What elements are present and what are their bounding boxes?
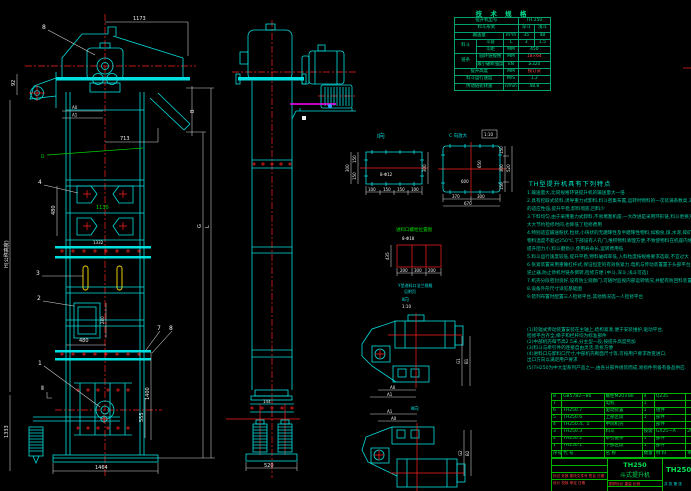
features-title: TH型提升机具有下列特点 — [529, 179, 611, 188]
note-line: 出口方向以满足用户要求 — [527, 358, 691, 364]
detail-C-dim: 150 — [499, 182, 504, 190]
cell: 输送量 — [455, 32, 504, 39]
detail-I-title: Ⅰ向 — [377, 132, 385, 140]
cell: 4 — [552, 422, 562, 429]
title-model: TH250 — [608, 461, 662, 469]
cell: 18×64 — [518, 54, 550, 61]
dim-height: H(公称高度) — [3, 240, 10, 268]
dim-713: 713 — [120, 136, 130, 142]
feature-line: 9.错列布置时配置三人检修平台,其他情况选一人检修平台 — [527, 294, 691, 302]
cell: MM — [504, 69, 518, 76]
feature-line: 提升阻力小,料斗磨损小,使用寿命长,运转费用低 — [527, 246, 691, 254]
cell: 3 — [518, 39, 534, 46]
cell: 1 — [642, 443, 654, 450]
drive-arrangement-view-top: Ⅱ向 1:10 A0 A1 G1 B1 — [362, 296, 470, 397]
spec-row: 料斗形式 深斗 浅斗 — [455, 25, 551, 32]
cell: 7 — [552, 401, 562, 408]
cell: 1.5 — [534, 39, 550, 46]
head-flange-band — [56, 77, 190, 81]
cell: 驱动装置 — [604, 408, 642, 415]
viewA-g: G1 — [456, 358, 461, 364]
part-label-2: 2 — [37, 295, 41, 302]
cell: Q235 — [654, 394, 685, 401]
cell — [562, 401, 605, 408]
cell: 1 — [642, 415, 654, 422]
cell: 料斗 — [604, 429, 642, 436]
viewB-a1: A1 — [387, 409, 393, 414]
cell: 按需 — [642, 429, 654, 436]
viewB-b: B2 — [465, 450, 470, 456]
dim-480-doors: 480 — [51, 205, 57, 215]
feature-line: 逆止器,防止停机时链条倒转,检修方便 (中斗,深斗,浅斗可选) — [527, 270, 691, 278]
detail-I-dim: 300 — [422, 164, 427, 172]
part-label-3: 3 — [36, 270, 40, 277]
dim-144: 144 — [263, 399, 271, 404]
cell — [686, 436, 691, 443]
cell: 斗距 — [477, 47, 504, 54]
viewA-title: Ⅱ向 — [402, 296, 409, 303]
parts-row: 3 TH250.3 料斗 按需 GX25—A 204 — [552, 429, 691, 436]
cell: GB5782—86 — [562, 394, 605, 401]
cell: 提升机型号 — [455, 18, 519, 25]
cell: 链条 — [455, 54, 477, 69]
detail-I-dim: 100 — [411, 187, 419, 192]
dim-a0: A0 — [72, 105, 78, 110]
dim-520: 520 — [264, 463, 274, 469]
cell: 部件 — [654, 443, 685, 450]
dim-1464: 1464 — [95, 465, 108, 471]
inlet-flange-detail: 进料口螺栓位置图 8-Φ18 200 300 200 435 Y型进料口法兰规格… — [385, 226, 441, 294]
cell: m³/h — [504, 32, 518, 39]
cad-drawing-canvas: D 1173 713 92 A0 A1 B G L 480 1130 1332 … — [0, 0, 691, 491]
feature-line: 7.机壳分段密封良好,设有防尘观察门,可随时监视内部运转情况,并配有防回料装置 — [527, 278, 691, 286]
cell: 圆环链规格 — [477, 54, 504, 61]
inlet-bolt: 8-Φ18 — [402, 236, 415, 241]
cell: 数量 — [642, 450, 654, 457]
cell: 名 称 — [604, 450, 642, 457]
parts-row: 4 TH250.4、5 中间机壳 部件 — [552, 422, 691, 429]
feature-line: 物料温度不超过250℃,下部设有人孔门,堆积物料清理方便,不致使物料在机座内堆积… — [527, 238, 691, 246]
cell — [686, 415, 691, 422]
cell: 料斗运行速度 — [455, 76, 504, 83]
detail-I-dim: 150 — [352, 155, 357, 163]
cell: MM — [504, 47, 518, 54]
inlet-dim: 200 — [428, 268, 436, 273]
cell: 中间机壳 — [604, 422, 642, 429]
cell: TH250.7 — [562, 408, 605, 415]
part-label-8: 8 — [42, 24, 46, 31]
detail-C-h650: 650 — [477, 160, 482, 168]
detail-I-dim: 150 — [397, 187, 405, 192]
spec-row: 料斗运行速度 M/S 1.2 — [455, 76, 551, 83]
dim-1173: 1173 — [133, 16, 146, 22]
detail-C-dim: 150 — [499, 146, 504, 154]
cell: 450 — [518, 47, 550, 54]
spec-row: 提升高度 MM 按订货 — [455, 69, 551, 76]
cell: 提升高度 — [455, 69, 504, 76]
parts-row: 7 电机 1 — [552, 401, 691, 408]
cell: 部件 — [654, 422, 685, 429]
detail-I-dim: 150 — [352, 172, 357, 180]
cell — [686, 401, 691, 408]
cell: 螺栓M20×80 — [604, 394, 642, 401]
bucket-left — [83, 266, 88, 290]
cell: TH250.3 — [562, 429, 605, 436]
front-view: D 1173 713 92 A0 A1 B G L 480 1130 1332 … — [3, 14, 215, 478]
dim-a1: A1 — [72, 113, 78, 118]
detail-I-dim: 300 — [345, 164, 350, 172]
inlet-dim-435: 435 — [385, 252, 390, 260]
dim-280: 280 — [100, 316, 105, 324]
detail-I-dim: 100 — [368, 187, 376, 192]
stamp-labels: 图样标记 重量 比例 — [609, 482, 640, 487]
title-product-name: 斗式提升机 — [608, 470, 662, 479]
dim-480-inlet: 480 — [79, 338, 89, 344]
weld-label: D — [41, 154, 45, 160]
detail-C-dim: 300 — [499, 164, 504, 172]
cell: 8 — [552, 394, 562, 401]
feature-line: 大大节约检修时间,也降低了检修费用 — [527, 222, 691, 230]
spec-row: 输送量 m³/h 35 48 — [455, 32, 551, 39]
section-dot — [328, 104, 332, 108]
cell: 传动链轮转速 — [455, 83, 504, 90]
drawing-number: TH250 — [666, 466, 691, 474]
features-numbered-notes: (1)轮辐式传动装置安装在主轴上,结构紧凑,便于安装维护,驱动平台, 检修平台齐… — [527, 328, 691, 363]
title-block: 标记 处数 更改文件号 签名 日期 设计 校核 审定 日期 TH250 斗式提升… — [551, 458, 691, 491]
cell: 电机 — [604, 401, 642, 408]
detail-C-dim: 520 — [506, 164, 511, 172]
dim-l: L — [205, 225, 211, 228]
part-label-8b: 8 — [169, 325, 173, 332]
cell: 204 — [686, 429, 691, 436]
viewA-scale: 1:10 — [402, 304, 411, 309]
detail-C-dim: 300 — [477, 194, 485, 199]
feature-line: 1.输送量大,比同规格环链提升机的输送量大一倍 — [527, 190, 691, 198]
feature-line: 3.下料均匀,由于采用重力式卸料,不易堵塞机座,一大改进是采用环形链,料斗更换方… — [527, 214, 691, 222]
cell: 48 — [534, 32, 550, 39]
cell: 材 料 — [654, 450, 685, 457]
cell: 1 — [642, 401, 654, 408]
viewB-g: G2 — [458, 450, 463, 456]
detail-I-bolt: 8-Φ12 — [380, 172, 393, 177]
detail-C-dim: 370 — [452, 194, 460, 199]
cell: TH250.1 — [562, 443, 605, 450]
parts-list: 8 GB5782—86 螺栓M20×80 4 Q235 7 电机 1 6 TH2… — [551, 393, 691, 458]
spec-row: 链条 圆环链规格 MM 18×64 — [455, 54, 551, 61]
cell: 上部区段 — [604, 415, 642, 422]
cell — [686, 408, 691, 415]
detail-view-C: C 向放大 1:10 600 650 150 300 150 520 370 3… — [438, 130, 512, 206]
spec-table: 提升机型号 TH 250 料斗形式 深斗 浅斗 输送量 m³/h 35 48 料… — [454, 17, 551, 91]
detail-I-dim: 150 — [383, 187, 391, 192]
bucket-right — [117, 266, 122, 290]
feature-line: 5.料斗运行速度较低,提升平稳,物料破碎率低,入料粒度按规格要求选取,不宜过大 — [527, 254, 691, 262]
cell: 4 — [642, 394, 654, 401]
parts-header-row: 序号 代 号 名 称 数量 材 料 单重 — [552, 450, 691, 457]
inlet-title: 进料口螺栓位置图 — [396, 226, 432, 233]
viewB-title: Ⅲ向 — [411, 405, 419, 412]
dim-1400: 1400 — [145, 387, 151, 400]
cell: 浅斗 — [534, 25, 550, 32]
cell: 单重 — [686, 450, 691, 457]
cell: 1.2 — [518, 76, 550, 83]
viewA-a1: A1 — [387, 392, 393, 397]
detail-C-scale: 1:10 — [484, 132, 493, 137]
spec-row: 提升机型号 TH 250 — [455, 18, 551, 25]
feature-line: 8.设备外形尺寸详见基础图 — [527, 286, 691, 294]
detail-view-I: Ⅰ向 8-Φ12 150 150 300 300 100 150 150 100 — [345, 132, 428, 195]
spec-row: 传动链轮转速 r/min 48.8 — [455, 83, 551, 90]
dim-92: 92 — [11, 80, 17, 86]
cell — [642, 422, 654, 429]
inlet-dim: 200 — [400, 268, 408, 273]
cell: 1 — [642, 436, 654, 443]
revision-row: 标记 处数 更改文件号 签名 日期 — [553, 474, 604, 479]
dim-1130: 1130 — [96, 205, 109, 211]
features-footnote: (5)TH250为中大型系列产品之一,由各分部件组装而成,易损件另备有备品供应. — [527, 365, 691, 371]
inlet-caption-2: 见附页 — [404, 288, 416, 294]
cell: 1 — [552, 443, 562, 450]
cell: 部件 — [654, 436, 685, 443]
cell: 料斗形式 — [455, 25, 519, 32]
cell — [686, 422, 691, 429]
cell: 48.8 — [518, 83, 550, 90]
cell: 1 — [642, 408, 654, 415]
cell: 部件 — [654, 415, 685, 422]
feature-line: 2.具有挖取式装料,诱导重力式卸料,料斗密集布置,运转时物料的一次装满系数高,对… — [527, 198, 691, 206]
dim-555: 555 — [139, 412, 145, 422]
detail-C-title: C 向放大 — [449, 132, 468, 139]
cell: ≥320 — [518, 61, 550, 68]
cell: 35 — [518, 32, 534, 39]
cell: TH250.4、5 — [562, 422, 605, 429]
cell: 组件 — [654, 408, 685, 415]
inlet-dim: 300 — [414, 268, 422, 273]
sheet-info: 共 张 第 张 — [664, 482, 682, 487]
features-notes: 1.输送量大,比同规格环链提升机的输送量大一倍 2.具有挖取式装料,诱导重力式卸… — [527, 190, 691, 302]
cell: MM — [504, 54, 518, 61]
cell: TH 250 — [518, 18, 550, 25]
dim-1333: 1333 — [4, 425, 10, 438]
drive-arrangement-view-bottom: Ⅲ向 A1 A0 G2 B2 — [362, 405, 471, 491]
side-view: 144 520 — [226, 20, 358, 478]
section-mark-2: Ⅱ — [41, 385, 44, 392]
cell: 序号 — [552, 450, 562, 457]
viewA-b: B1 — [464, 358, 469, 364]
detail-C-dim: 670 — [464, 201, 472, 206]
feature-line: 4.特别适宜输送粉状,粒状,小块状的无磨琢性及半磨琢性物料,如粮食,煤,水泥,碎… — [527, 230, 691, 238]
cell: 深斗 — [518, 25, 534, 32]
dim-g: G — [197, 224, 203, 228]
parts-row: 8 GB5782—86 螺栓M20×80 4 Q235 — [552, 394, 691, 401]
part-label-1: 1 — [38, 360, 42, 367]
cell: L — [504, 39, 518, 46]
viewA-a0: A0 — [390, 385, 396, 390]
cell: TH250.6 — [562, 415, 605, 422]
cell: r/min — [504, 83, 518, 90]
cell: M/S — [504, 76, 518, 83]
cell: 下部区段 — [604, 443, 642, 450]
parts-row: 1 TH250.1 下部区段 1 部件 — [552, 443, 691, 450]
cell: 斗容 — [477, 39, 504, 46]
cell: 3 — [552, 429, 562, 436]
parts-row: 2 TH250.2 牵引链条 1 部件 — [552, 436, 691, 443]
cell: GX25—A — [654, 429, 685, 436]
part-label-7: 7 — [157, 325, 161, 332]
cell — [686, 443, 691, 450]
feature-line: 6.张紧装置采用重锤杠杆式,保证恒定的有效张紧力,电机与传动装置置于头部平台上,… — [527, 262, 691, 270]
cell: 按订货 — [518, 69, 550, 76]
cell: 代 号 — [562, 450, 605, 457]
cell: 最小破断强度 — [477, 61, 504, 68]
parts-row: 5 TH250.6 上部区段 1 部件 — [552, 415, 691, 422]
dim-1332: 1332 — [93, 240, 104, 245]
feature-line: 的适应性强,提升平稳,卸料彻底,回料少 — [527, 206, 691, 214]
note-line: (4)进料口与卸料口尺寸,中部机壳断面尺寸等,可按用户要求改变进口, — [527, 352, 691, 358]
cell: 牵引链条 — [604, 436, 642, 443]
part-label-4: 4 — [38, 179, 42, 186]
cell: kN — [504, 61, 518, 68]
cell: 6 — [552, 408, 562, 415]
cell: 2 — [552, 436, 562, 443]
signature-row: 设计 校核 审定 日期 — [553, 481, 585, 486]
detail-C-w600: 600 — [461, 179, 469, 184]
viewB-a0: A0 — [391, 416, 397, 421]
inlet-caption-1: Y型进料口法兰规格 — [397, 282, 432, 288]
cell: 5 — [552, 415, 562, 422]
cell — [686, 394, 691, 401]
cell: TH250.2 — [562, 436, 605, 443]
dim-b: B — [190, 109, 196, 113]
parts-row: 6 TH250.7 驱动装置 1 组件 — [552, 408, 691, 415]
cell — [654, 401, 685, 408]
spec-row: 料斗 斗容 L 3 1.5 — [455, 39, 551, 46]
cell: 料斗 — [455, 39, 477, 54]
